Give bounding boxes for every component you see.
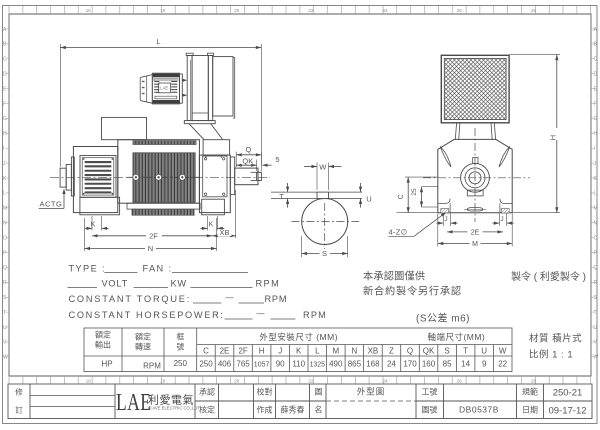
svg-text:額定: 額定	[95, 330, 111, 340]
svg-text:S: S	[444, 347, 449, 356]
svg-text:TYPE :: TYPE :	[69, 264, 107, 274]
svg-text:L: L	[594, 191, 597, 197]
svg-text:(S公差 m6): (S公差 m6)	[416, 312, 470, 325]
svg-text:LAE: LAE	[160, 86, 168, 91]
svg-text:N: N	[148, 244, 153, 253]
svg-text:22: 22	[498, 360, 507, 369]
svg-text:1325: 1325	[310, 362, 326, 369]
svg-text:T: T	[463, 347, 468, 356]
svg-text:K: K	[91, 222, 96, 229]
svg-text:M: M	[332, 347, 339, 356]
svg-text:H: H	[3, 131, 7, 137]
svg-text:T: T	[279, 192, 284, 201]
svg-text:KW: KW	[171, 279, 187, 289]
svg-text:CONSTANT HORSEPOWER:: CONSTANT HORSEPOWER:	[69, 310, 225, 320]
svg-text:28: 28	[531, 8, 537, 13]
svg-text:Q: Q	[245, 145, 251, 154]
svg-text:DB0537B: DB0537B	[459, 405, 499, 415]
svg-text:名: 名	[315, 405, 323, 415]
svg-text:新合約製令另行承認: 新合約製令另行承認	[363, 285, 462, 298]
svg-text:R: R	[3, 280, 7, 286]
svg-text:RPM: RPM	[265, 294, 288, 304]
svg-text:輸出: 輸出	[95, 340, 111, 350]
svg-text:O: O	[594, 235, 598, 241]
svg-text:QK: QK	[242, 156, 253, 165]
svg-text:90: 90	[276, 360, 285, 369]
svg-text:16: 16	[86, 8, 92, 13]
svg-text:RPM: RPM	[256, 279, 281, 289]
svg-text:160: 160	[422, 360, 436, 369]
svg-text:14: 14	[461, 360, 470, 369]
svg-text:RPM: RPM	[303, 310, 327, 320]
svg-text:09-17-12: 09-17-12	[548, 406, 586, 417]
svg-text:O: O	[3, 235, 7, 241]
svg-text:110: 110	[292, 360, 305, 369]
svg-text:24: 24	[383, 8, 389, 13]
svg-text:U: U	[594, 325, 598, 331]
svg-text:W: W	[594, 355, 599, 361]
svg-text:LAE: LAE	[116, 388, 151, 416]
svg-text:Z: Z	[389, 347, 394, 356]
svg-text:L: L	[156, 37, 160, 46]
svg-text:H: H	[549, 135, 558, 140]
svg-text:U: U	[3, 325, 7, 331]
svg-text:U: U	[366, 195, 371, 204]
svg-text:規範: 規範	[522, 387, 538, 397]
svg-text:J: J	[500, 216, 503, 223]
svg-text:XB: XB	[368, 347, 379, 356]
svg-text:比例 1 : 1: 比例 1 : 1	[529, 349, 573, 361]
svg-text:L: L	[315, 347, 320, 356]
svg-text:G: G	[594, 116, 598, 122]
svg-text:校對: 校對	[257, 387, 273, 397]
svg-text:VOLT: VOLT	[102, 279, 129, 289]
svg-text:C: C	[203, 347, 209, 356]
svg-text:XB: XB	[219, 228, 229, 237]
svg-text:K: K	[296, 347, 302, 356]
svg-text:—: —	[257, 309, 265, 318]
svg-text:N: N	[352, 347, 358, 356]
svg-text:5: 5	[275, 155, 279, 164]
svg-text:16: 16	[86, 379, 92, 384]
svg-text:I: I	[3, 146, 4, 152]
svg-text:承認: 承認	[199, 387, 215, 397]
svg-text:G: G	[3, 116, 7, 122]
svg-text:250-21: 250-21	[553, 388, 583, 399]
svg-text:C: C	[3, 57, 7, 63]
svg-text:HP: HP	[101, 360, 112, 369]
svg-text:—: —	[226, 293, 234, 302]
svg-text:20: 20	[234, 8, 240, 13]
svg-text:S: S	[322, 249, 327, 258]
svg-text:22: 22	[308, 8, 314, 13]
svg-text:28: 28	[531, 379, 537, 384]
svg-text:外型圖: 外型圖	[357, 387, 386, 397]
svg-text:製令 ( 利愛製令 ): 製令 ( 利愛製令 )	[511, 270, 586, 283]
svg-text:I: I	[594, 146, 595, 152]
svg-text:F: F	[3, 101, 6, 107]
svg-text:FAN :: FAN :	[143, 264, 173, 274]
svg-text:D: D	[3, 72, 7, 78]
svg-text:作成: 作成	[257, 405, 273, 415]
svg-text:U: U	[481, 347, 487, 356]
svg-text:CONSTANT TORQUE:: CONSTANT TORQUE:	[69, 294, 192, 304]
svg-text:外型安裝尺寸 (MM): 外型安裝尺寸 (MM)	[259, 332, 338, 342]
svg-text:M: M	[594, 206, 598, 212]
svg-text:軸端尺寸(MM): 軸端尺寸(MM)	[427, 332, 485, 342]
svg-text:利愛電氣: 利愛電氣	[148, 393, 194, 407]
svg-text:圖: 圖	[315, 388, 323, 397]
svg-text:C: C	[594, 57, 598, 63]
svg-text:工號: 工號	[422, 387, 438, 397]
svg-text:250: 250	[174, 359, 188, 368]
svg-text:Q: Q	[407, 347, 413, 356]
svg-text:N: N	[3, 221, 7, 227]
svg-text:F: F	[594, 101, 597, 107]
svg-text:ACTG: ACTG	[40, 200, 63, 209]
svg-text:18: 18	[160, 8, 166, 13]
svg-text:訂: 訂	[15, 405, 23, 415]
svg-text:1057: 1057	[254, 362, 270, 369]
svg-text:L: L	[3, 191, 6, 197]
svg-text:406: 406	[218, 360, 232, 369]
svg-text:865: 865	[348, 360, 362, 369]
svg-text:26: 26	[457, 8, 463, 13]
svg-text:2E: 2E	[220, 347, 230, 356]
svg-text:日期: 日期	[522, 406, 538, 415]
svg-text:18: 18	[160, 379, 166, 384]
svg-text:20: 20	[234, 379, 240, 384]
svg-text:22: 22	[308, 379, 314, 384]
svg-text:號: 號	[176, 342, 184, 352]
svg-text:2F: 2F	[149, 231, 158, 240]
svg-text:額定: 額定	[135, 332, 151, 342]
svg-text:QK: QK	[423, 347, 435, 356]
svg-text:M: M	[3, 206, 7, 212]
svg-text:T: T	[3, 310, 6, 316]
svg-text:2E: 2E	[471, 229, 480, 236]
svg-text:24: 24	[387, 360, 396, 369]
svg-text:LI AVE ELECTRIC CO.,LDT: LI AVE ELECTRIC CO.,LDT	[148, 406, 200, 411]
svg-text:R: R	[594, 280, 598, 286]
svg-text:M: M	[472, 241, 478, 248]
svg-text:250: 250	[199, 360, 213, 369]
svg-text:D: D	[594, 72, 598, 78]
svg-text:26: 26	[457, 379, 463, 384]
svg-text:J: J	[278, 347, 282, 356]
svg-text:C: C	[398, 194, 405, 199]
svg-text:85: 85	[443, 360, 452, 369]
svg-text:核定: 核定	[199, 405, 215, 415]
svg-text:W: W	[319, 162, 327, 171]
svg-text:轉速: 轉速	[135, 342, 151, 352]
svg-text:Q: Q	[3, 265, 7, 271]
svg-text:N: N	[594, 221, 598, 227]
svg-text:薛秀春: 薛秀春	[281, 405, 305, 415]
svg-text:24: 24	[383, 379, 389, 384]
svg-text:T: T	[594, 310, 597, 316]
svg-text:J: J	[444, 216, 447, 223]
svg-text:168: 168	[366, 360, 380, 369]
svg-text:框: 框	[176, 332, 184, 342]
svg-text:9: 9	[482, 360, 487, 369]
svg-text:2F: 2F	[238, 347, 247, 356]
svg-text:170: 170	[403, 360, 417, 369]
svg-text:RPM: RPM	[143, 362, 161, 371]
svg-text:本承認圖僅供: 本承認圖僅供	[363, 270, 425, 283]
svg-text:W: W	[3, 355, 8, 361]
svg-text:H: H	[259, 347, 265, 356]
svg-text:25: 25	[411, 188, 418, 196]
svg-text:Q: Q	[594, 265, 598, 271]
svg-text:圖號: 圖號	[422, 405, 438, 415]
svg-text:K: K	[209, 222, 214, 229]
svg-text:材質 積片式: 材質 積片式	[529, 333, 582, 345]
svg-text:490: 490	[329, 360, 343, 369]
svg-text:修: 修	[15, 387, 23, 397]
svg-text:W: W	[499, 347, 507, 356]
svg-text:765: 765	[236, 360, 250, 369]
svg-text:H: H	[594, 131, 598, 137]
svg-text:4-Z∅: 4-Z∅	[389, 228, 408, 237]
